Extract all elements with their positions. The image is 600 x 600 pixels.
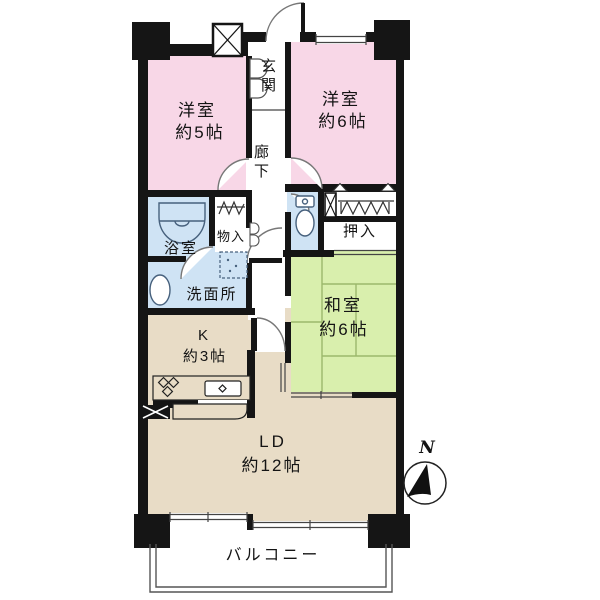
duct-box	[325, 193, 336, 217]
bathroom-label: 浴室	[164, 241, 198, 256]
toilet-icon	[296, 196, 314, 236]
bedroom5-size: 約5帖	[175, 124, 224, 141]
living-dining-size: 約12帖	[242, 457, 303, 474]
storage-label: 物入	[217, 230, 245, 243]
sink-icon	[205, 381, 241, 396]
kitchen-duct-box	[141, 405, 170, 419]
balcony-label: バルコニー	[226, 548, 321, 564]
entrance-label: 玄関	[260, 58, 275, 96]
window-balcony-right	[253, 520, 368, 530]
elevator-shaft	[213, 24, 242, 56]
living-dining-label: LD	[259, 433, 287, 450]
pillar-bottom-right	[368, 514, 410, 548]
kitchen-label: K	[198, 328, 210, 343]
closet-label: 押入	[343, 224, 377, 239]
japanese-room-label: 和室	[324, 297, 362, 314]
floorplan-drawing	[0, 0, 600, 600]
wall-right	[396, 56, 404, 514]
entrance-door	[266, 3, 305, 41]
floorplan: 洋室 約5帖 洋室 約6帖 玄関 廊下 浴室 物入 洗面所 押入 和室 約6帖 …	[0, 0, 600, 600]
japanese-room-size: 約6帖	[319, 321, 368, 338]
compass-icon	[404, 462, 446, 504]
hallway-label: 廊下	[253, 144, 268, 182]
wall-left	[138, 44, 148, 514]
window-balcony-left	[170, 512, 247, 522]
washroom-label: 洗面所	[186, 287, 237, 302]
bedroom6-size: 約6帖	[318, 113, 367, 130]
washer-pan-icon	[220, 252, 247, 278]
basin-icon	[150, 275, 170, 305]
window-top	[316, 34, 366, 45]
bedroom6-label: 洋室	[322, 91, 360, 108]
bedroom5-label: 洋室	[178, 102, 216, 119]
pillar-bottom-left	[134, 514, 170, 548]
kitchen-size: 約3帖	[183, 349, 227, 364]
north-label: N	[419, 440, 437, 457]
